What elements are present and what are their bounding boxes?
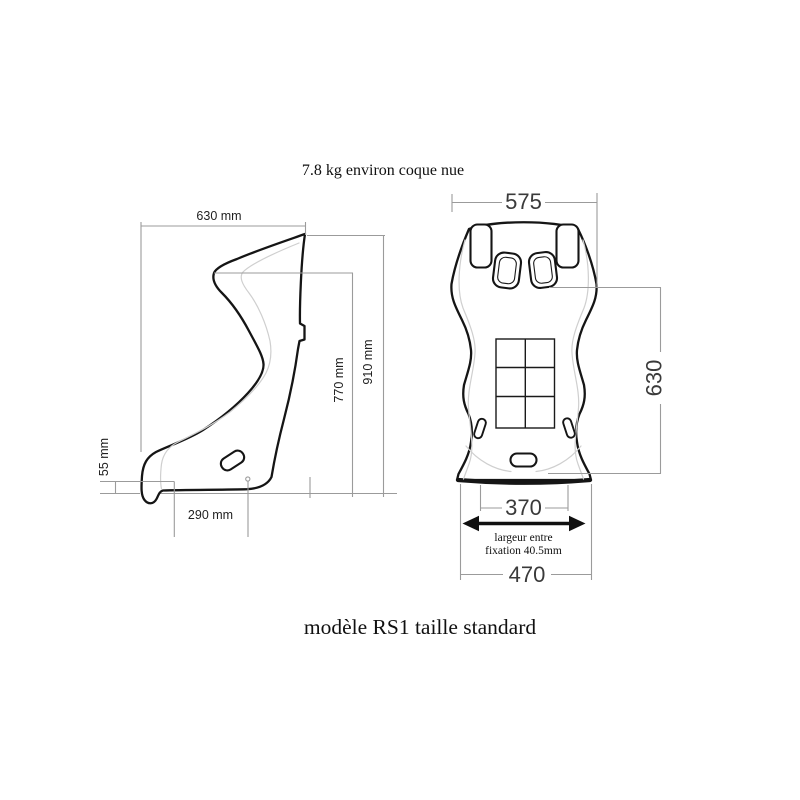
dim-label-630: 630: [642, 360, 667, 397]
dim-label-575: 575: [505, 189, 542, 214]
belt-hole-left: [492, 252, 522, 290]
dim-label-290mm: 290 mm: [188, 508, 233, 522]
shoulder-wing-right: [557, 225, 579, 268]
belt-hole-right: [528, 251, 558, 289]
dim-label-770mm: 770 mm: [332, 357, 346, 402]
bottom-center-slot: [511, 454, 537, 467]
side-view: 630 mm 910 mm 770 mm 55 mm 290 mm: [97, 209, 397, 537]
dim-370-group: 370: [481, 485, 569, 520]
drawing-canvas: 630 mm 910 mm 770 mm 55 mm 290 mm: [0, 0, 800, 800]
dim-label-55mm: 55 mm: [97, 438, 111, 476]
weight-note: 7.8 kg environ coque nue: [302, 162, 464, 179]
dim-910mm-group: 910 mm: [307, 236, 385, 498]
fixation-arrow-head-left: [463, 516, 480, 531]
dim-label-910mm: 910 mm: [361, 339, 375, 384]
shoulder-wing-left: [471, 225, 492, 268]
model-caption: modèle RS1 taille standard: [304, 615, 537, 639]
fixation-note-line2: fixation 40.5mm: [485, 545, 562, 557]
seat-technical-drawing: 630 mm 910 mm 770 mm 55 mm 290 mm: [0, 0, 800, 800]
fixation-note-line1: largeur entre: [494, 532, 552, 544]
dim-label-470: 470: [509, 562, 546, 587]
fixation-arrow-head-right: [569, 516, 586, 531]
front-view: 575 630 370 largeur entre fixation 40.5m…: [451, 189, 666, 587]
dim-label-630mm: 630 mm: [196, 209, 241, 223]
dim-label-370: 370: [505, 495, 542, 520]
